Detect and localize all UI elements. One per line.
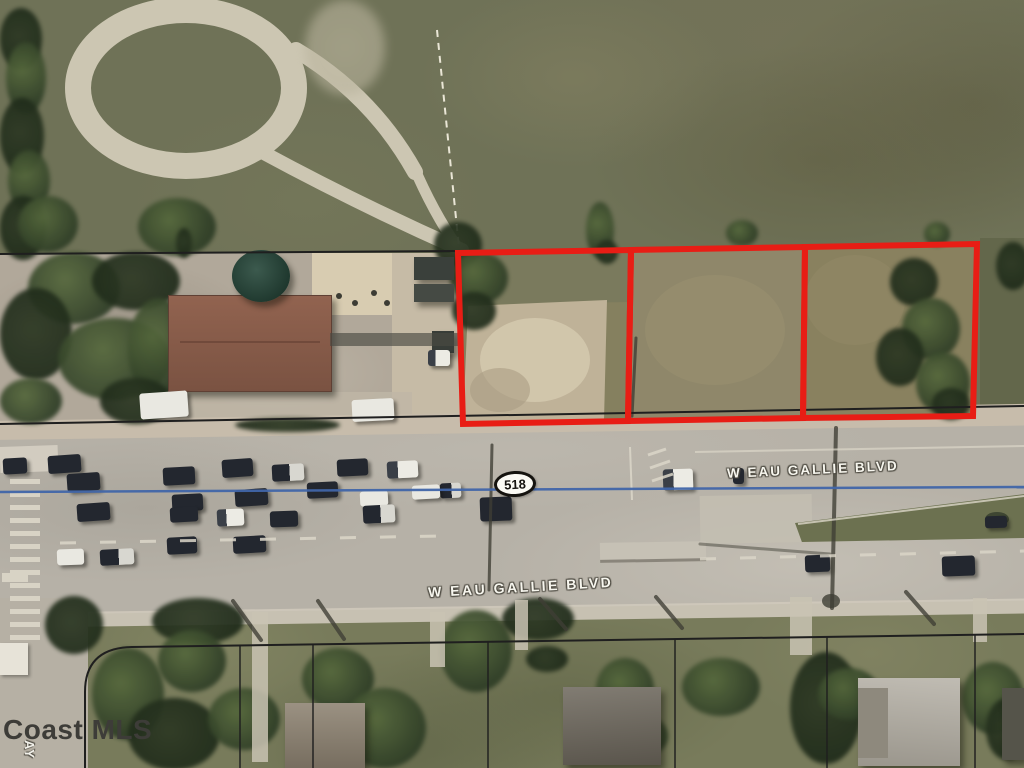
stop-bar (2, 573, 28, 582)
aerial-map: 518 W EAU GALLIE BLVD W EAU GALLIE BLVD … (0, 0, 1024, 768)
south-boundary (85, 634, 1024, 768)
fence-line-north (0, 251, 458, 254)
crosswalk (10, 479, 40, 640)
edge-line-north (695, 446, 1024, 452)
lane-dash-west (60, 536, 440, 543)
turn-lane-hatch (630, 447, 673, 500)
lot-lines (240, 635, 975, 768)
route-number: 518 (504, 476, 526, 492)
median-curb-line (798, 496, 1024, 524)
parcel-1-outline (458, 250, 631, 424)
pole-base-shadow (822, 594, 840, 608)
parcel-3-outline (803, 244, 977, 418)
parcel-2-outline (628, 247, 805, 421)
map-annotations (0, 0, 1024, 768)
highlighted-parcels (458, 244, 977, 424)
boundary-lines (0, 251, 1024, 768)
lane-dash-east (700, 551, 1024, 559)
mls-watermark: Coast MLS (3, 714, 152, 746)
